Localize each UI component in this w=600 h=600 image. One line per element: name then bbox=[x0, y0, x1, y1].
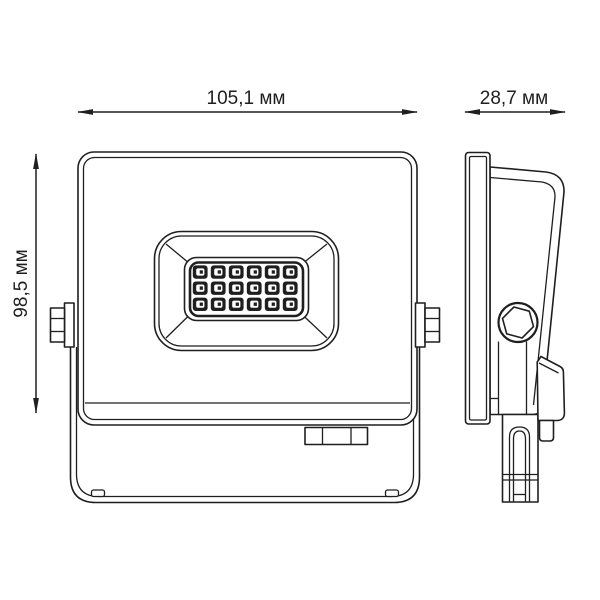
height-dimension-label: 98,5 мм bbox=[11, 249, 32, 317]
led-chip-dot bbox=[272, 270, 275, 273]
led-chip-dot bbox=[218, 303, 221, 306]
cable-gland-front-outline bbox=[305, 428, 368, 445]
led-chip-dot bbox=[236, 286, 239, 289]
led-chip-dot bbox=[272, 303, 275, 306]
width-dimension: 105,1 мм bbox=[78, 88, 417, 112]
depth-dimension-label: 28,7 мм bbox=[480, 88, 548, 109]
led-chip-dot bbox=[272, 286, 275, 289]
pivot-bolt-left bbox=[51, 303, 75, 347]
cable-gland-front bbox=[305, 428, 368, 445]
hex-head-right bbox=[425, 308, 440, 342]
led-chip-dot bbox=[236, 270, 239, 273]
bracket-foot-right bbox=[386, 490, 399, 497]
hex-bolt bbox=[499, 303, 538, 342]
side-view bbox=[466, 153, 565, 503]
led-chip-dot bbox=[290, 303, 293, 306]
led-chip-dot bbox=[254, 303, 257, 306]
led-chip-dot bbox=[218, 286, 221, 289]
height-dimension: 98,5 мм bbox=[11, 154, 36, 413]
pivot-flange-right bbox=[416, 303, 426, 347]
led-chip-dot bbox=[200, 270, 203, 273]
led-chip-dot bbox=[290, 270, 293, 273]
pivot-flange-left bbox=[65, 303, 75, 347]
led-chip-dot bbox=[200, 303, 203, 306]
width-dimension-label: 105,1 мм bbox=[207, 88, 286, 109]
led-chip-dot bbox=[218, 270, 221, 273]
back-tab-outline bbox=[537, 357, 564, 421]
led-chip-dot bbox=[254, 270, 257, 273]
depth-dimension: 28,7 мм bbox=[465, 88, 565, 112]
pivot-bolt-right bbox=[416, 303, 440, 347]
bracket-leg bbox=[503, 415, 539, 503]
led-chip-dot bbox=[200, 286, 203, 289]
hex-head-left bbox=[51, 308, 65, 342]
led-chip-dot bbox=[254, 286, 257, 289]
led-chip-dot bbox=[290, 286, 293, 289]
front-view bbox=[51, 152, 440, 503]
bracket-foot-left bbox=[92, 490, 105, 497]
back-tab bbox=[537, 357, 564, 421]
drawing-canvas: 105,1 мм 28,7 мм 98,5 мм bbox=[0, 0, 600, 600]
led-chip-dot bbox=[236, 303, 239, 306]
cable-gland-side bbox=[540, 421, 554, 442]
led-window bbox=[155, 232, 339, 351]
